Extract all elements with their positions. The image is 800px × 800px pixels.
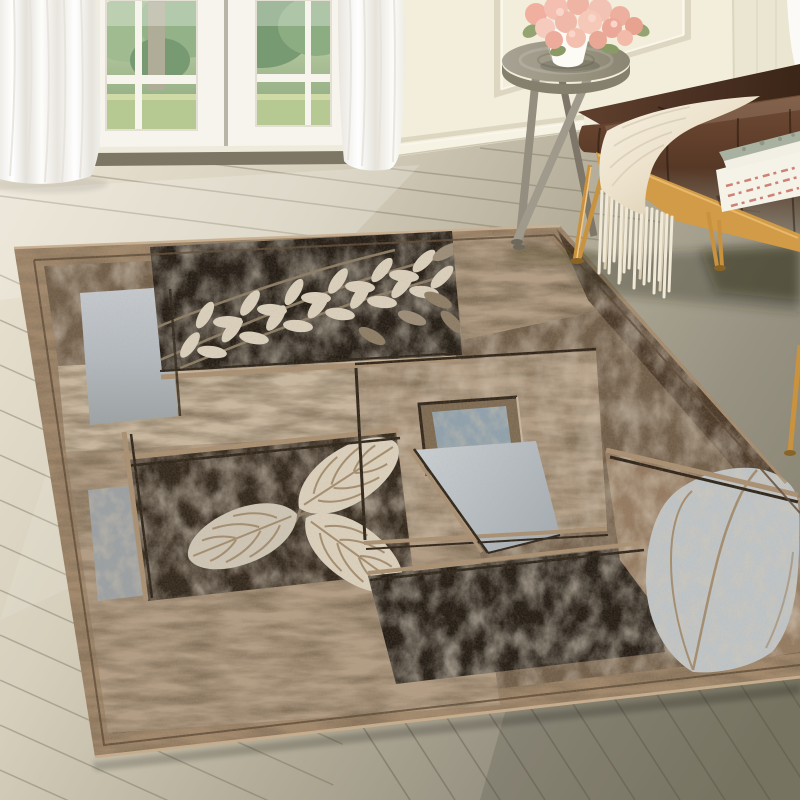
muntin-horizontal-right	[256, 74, 331, 82]
stool-foot	[513, 244, 525, 250]
leg-foot-left	[570, 258, 584, 264]
door-gap	[224, 0, 228, 148]
muntin-vertical-right	[305, 0, 311, 126]
stool-foot-2	[511, 239, 523, 245]
door-threshold	[92, 151, 352, 166]
muntin-horizontal-left	[106, 75, 197, 84]
scene-canvas	[0, 0, 800, 800]
muntin-vertical-left	[135, 0, 142, 130]
leg-foot-right	[784, 450, 796, 456]
french-door	[86, 0, 356, 166]
photo-living-room-rug	[0, 0, 800, 800]
leg-foot-mid	[714, 265, 726, 271]
